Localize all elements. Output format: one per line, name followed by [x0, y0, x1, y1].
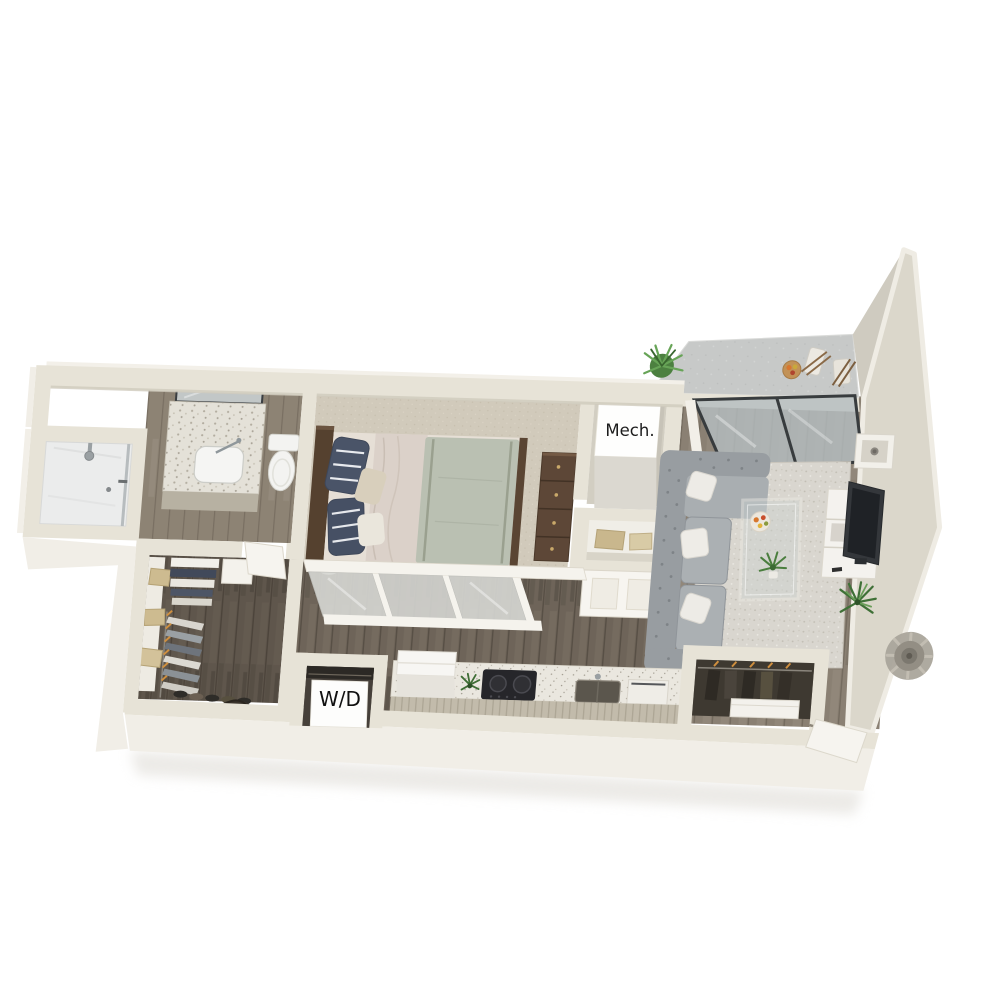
dishwasher [627, 680, 669, 705]
bath-south-wall [136, 539, 243, 558]
wd-label: W/D [319, 687, 361, 711]
shower-door-handle [118, 480, 127, 483]
shoe-cabinet [730, 699, 799, 719]
bathroom-door [242, 542, 289, 579]
tv [842, 482, 885, 565]
storage-basket [149, 568, 171, 586]
storage-basket [144, 609, 164, 625]
floor-plan-render: Mech. W/D [0, 0, 1000, 1000]
refrigerator [395, 651, 459, 701]
accent-pillow [357, 512, 385, 547]
coffee-table [740, 499, 801, 600]
cooktop [481, 669, 537, 701]
folded-towel [595, 530, 625, 550]
unit-scene [0, 224, 966, 817]
white-pillow [680, 527, 709, 558]
fruit-plate [750, 512, 771, 532]
vanity [161, 401, 266, 512]
wall-cube-shelf [854, 434, 895, 469]
mech-label: Mech. [605, 421, 654, 440]
vanity-cabinet-front [161, 491, 258, 512]
mech-unit-box [590, 400, 665, 510]
folded-towel [630, 533, 652, 550]
bed [305, 426, 528, 572]
floor-plan-svg: Mech. W/D [0, 0, 1000, 1000]
